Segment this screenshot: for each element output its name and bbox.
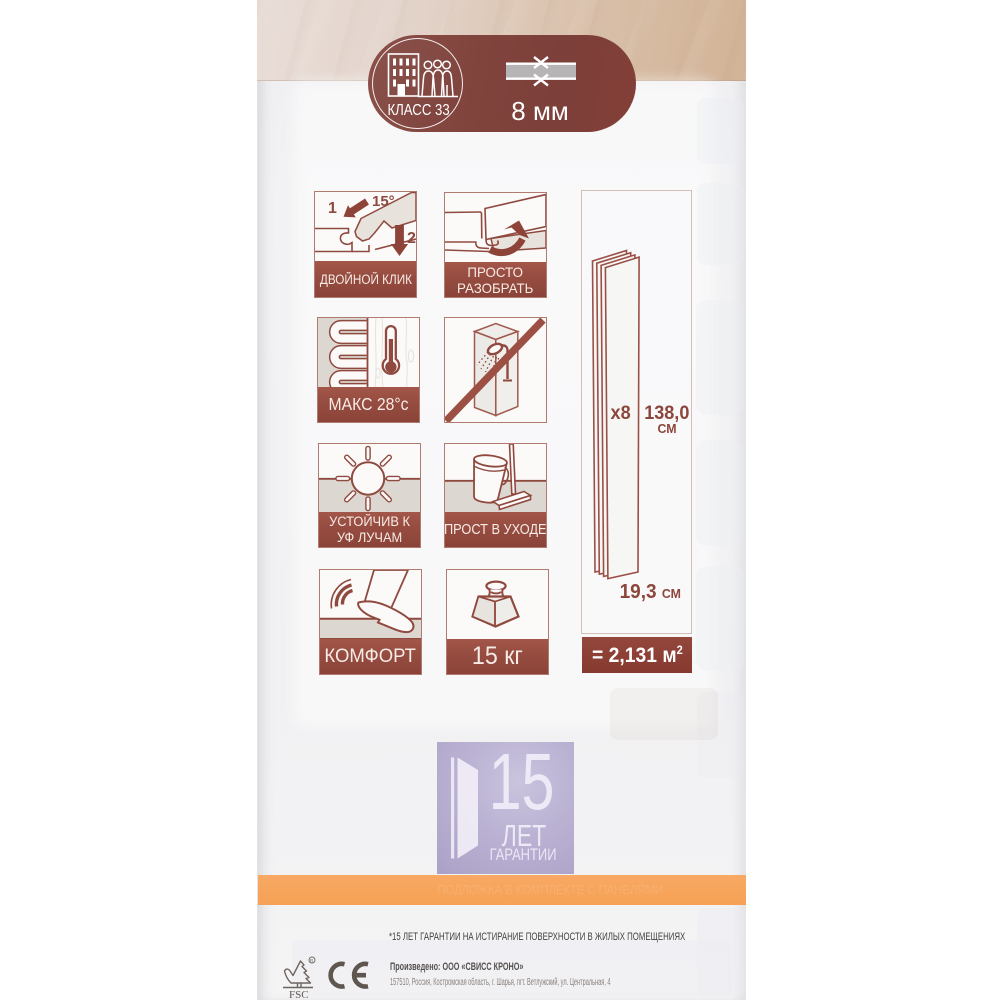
svg-text:2: 2 (407, 230, 416, 247)
svg-text:1: 1 (328, 200, 337, 217)
svg-text:FSC: FSC (289, 989, 309, 999)
svg-text:15°: 15° (372, 193, 395, 210)
